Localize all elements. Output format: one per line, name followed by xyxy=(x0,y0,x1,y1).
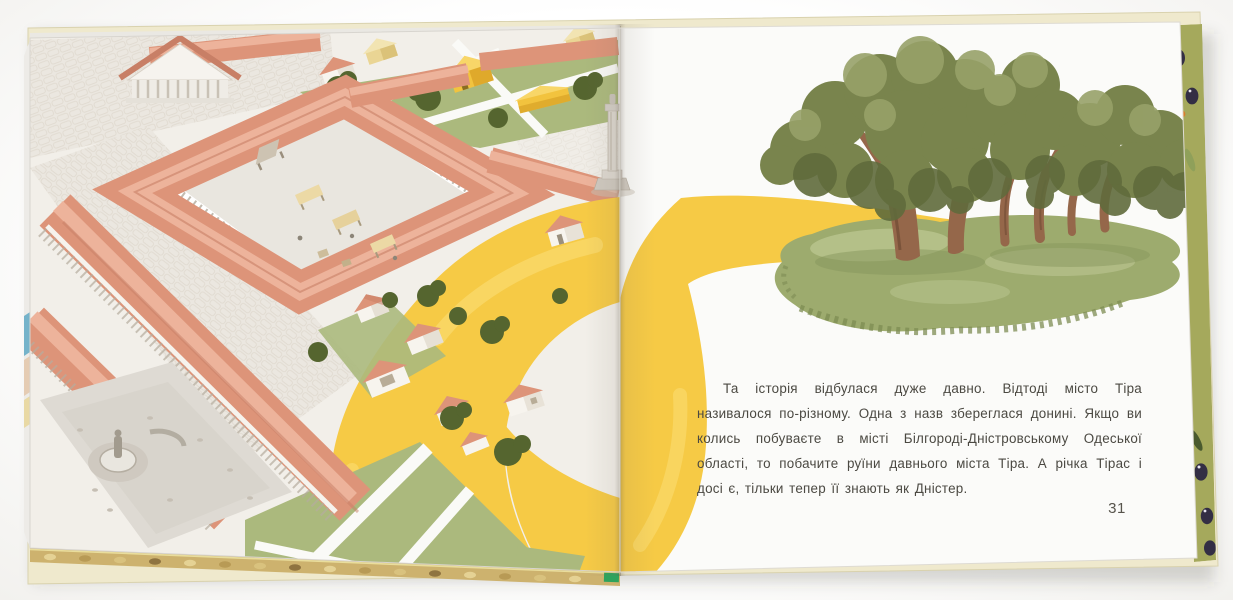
left-page xyxy=(30,21,620,578)
story-paragraph: Та історія відбулася дуже давно. Відтоді… xyxy=(697,376,1142,501)
open-book-illustration xyxy=(0,0,1233,600)
left-fore-edge xyxy=(24,40,30,548)
page-number: 31 xyxy=(1096,500,1138,517)
book-photo: Та історія відбулася дуже давно. Відтоді… xyxy=(0,0,1233,600)
